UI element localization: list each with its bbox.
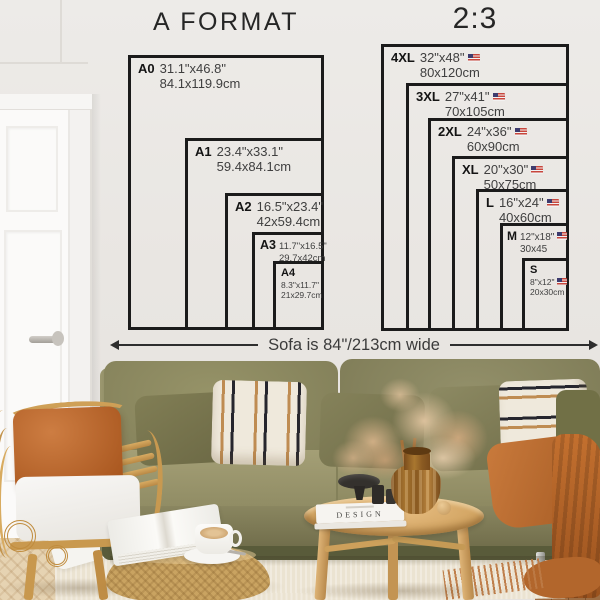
size-inches: 8.3"x11.7" (281, 280, 323, 290)
size-guide-image: DESIGN A FORMAT A0 31.1"x46.8" 84.1x119.… (0, 0, 600, 600)
sofa-width-label: Sofa is 84"/213cm wide (268, 336, 440, 355)
size-inches: 12"x18" (520, 232, 567, 244)
ratio-2-3-title: 2:3 (381, 2, 569, 36)
wall-molding-horizontal (0, 62, 88, 64)
door-panel-upper (6, 126, 58, 212)
size-cm: 20x30cm (530, 287, 567, 297)
door-handle-rosette (52, 331, 64, 346)
a-format-title: A FORMAT (128, 8, 324, 37)
size-inches: 27"x41" (445, 89, 564, 104)
size-inches: 32"x48" (420, 50, 564, 65)
size-name: L (486, 195, 494, 210)
size-cm: 60x90cm (467, 139, 564, 154)
size-inches: 11.7"x16.5" (279, 241, 327, 252)
us-flag-icon (468, 54, 480, 62)
size-inches: 20"x30" (484, 162, 564, 177)
size-inches: 24"x36" (467, 124, 564, 139)
us-flag-icon (557, 232, 567, 240)
black-candle-holder (372, 485, 384, 504)
size-inches: 16"x24" (499, 195, 564, 210)
size-name: M (507, 229, 517, 243)
size-name: 4XL (391, 50, 415, 65)
arrow-line (119, 344, 258, 346)
size-name: A0 (138, 61, 155, 76)
size-cm: 21x29.7cm (281, 290, 323, 300)
size-cm: 59.4x84.1cm (217, 159, 319, 174)
size-name: A1 (195, 144, 212, 159)
striped-pillow-1 (211, 380, 307, 466)
design-book-stack: DESIGN (316, 501, 405, 523)
cup-handle (229, 530, 242, 547)
us-flag-icon (493, 93, 505, 101)
size-name: A4 (281, 267, 323, 280)
us-flag-icon (531, 166, 543, 174)
size-inches: 23.4"x33.1" (217, 144, 319, 159)
size-cm: 80x120cm (420, 65, 564, 80)
us-flag-icon (547, 199, 559, 207)
dried-flowers (332, 440, 374, 476)
arrow-line (450, 344, 589, 346)
amber-glass-vase (391, 464, 441, 514)
size-inches: 31.1"x46.8" (160, 61, 319, 76)
size-name: S (530, 264, 567, 277)
size-box-a4: A4 8.3"x11.7" 21x29.7cm (273, 261, 324, 330)
size-box-s: S 8"x12" 20x30cm (522, 258, 569, 331)
dried-flowers (380, 378, 420, 412)
arrow-left-head (110, 340, 119, 350)
size-name: 3XL (416, 89, 440, 104)
size-name: XL (462, 162, 479, 177)
size-inches: 16.5"x23.4" (257, 199, 323, 214)
size-inches: 8"x12" (530, 277, 567, 287)
book-spine-title: DESIGN (336, 509, 384, 520)
arrow-right-head (589, 340, 598, 350)
size-name: 2XL (438, 124, 462, 139)
wall-molding-vertical (60, 0, 62, 62)
size-cm: 30x45 (520, 244, 567, 256)
size-name: A2 (235, 199, 252, 214)
rattan-coil-detail (46, 545, 68, 567)
size-name: A3 (260, 238, 276, 253)
us-flag-icon (557, 278, 567, 285)
size-cm: 42x59.4cm (257, 214, 323, 229)
door-frame-top (0, 94, 92, 110)
wooden-ball (437, 501, 451, 515)
size-cm: 84.1x119.9cm (160, 76, 319, 91)
us-flag-icon (515, 128, 527, 136)
table-shadow (296, 582, 506, 600)
sofa-width-arrow: Sofa is 84"/213cm wide (110, 337, 598, 353)
latte-surface (200, 527, 228, 539)
vase-rim (403, 447, 431, 455)
rattan-coil-detail (4, 520, 36, 552)
